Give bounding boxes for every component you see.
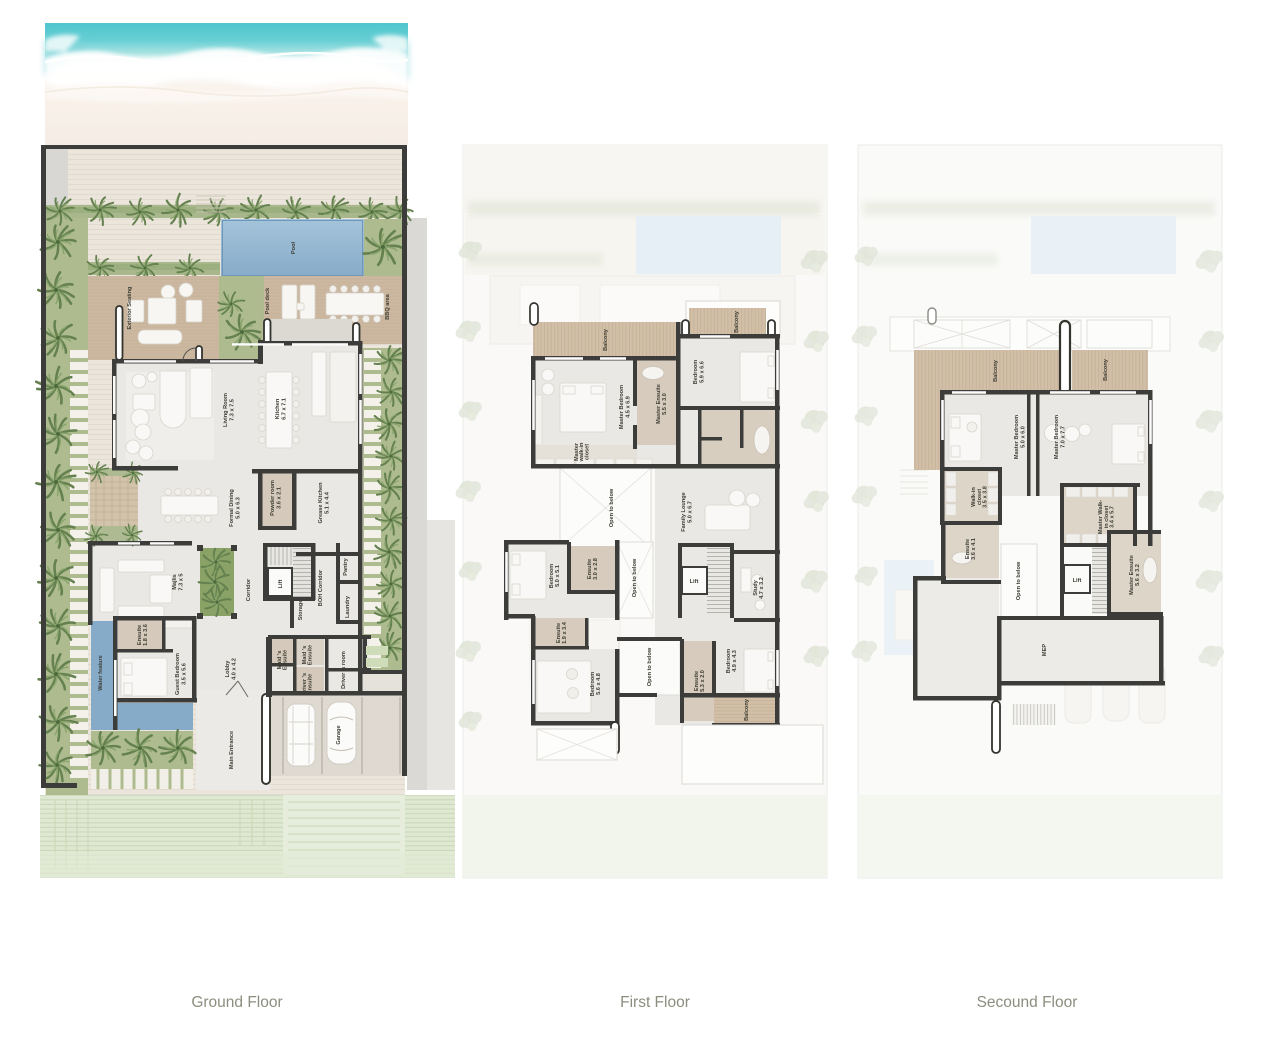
svg-text:Bedroom5.6 x 4.8: Bedroom5.6 x 4.8 <box>590 672 602 697</box>
svg-text:Secound Floor: Secound Floor <box>977 994 1078 1011</box>
svg-text:Lift: Lift <box>690 579 699 585</box>
svg-text:Ensuite1.9 x 3.4: Ensuite1.9 x 3.4 <box>556 621 568 644</box>
svg-text:Masterwalk-incloset: Masterwalk-incloset <box>574 442 590 463</box>
svg-text:Driver 'sEnsuite: Driver 'sEnsuite <box>302 673 314 695</box>
svg-text:First Floor: First Floor <box>620 994 690 1011</box>
svg-text:Ensuite1.8 x 3.6: Ensuite1.8 x 3.6 <box>137 624 149 646</box>
svg-text:Lift: Lift <box>1073 578 1082 584</box>
svg-text:Open to below: Open to below <box>647 647 653 686</box>
svg-text:Water feature: Water feature <box>98 655 104 691</box>
svg-text:Main Entrance: Main Entrance <box>229 731 235 769</box>
svg-text:Exterior Seating: Exterior Seating <box>127 286 133 329</box>
svg-text:Bedroom5.0 x 5.1: Bedroom5.0 x 5.1 <box>549 564 561 589</box>
svg-text:Balcony: Balcony <box>734 310 740 333</box>
svg-text:Walk-incloset3.5 x 3.8: Walk-incloset3.5 x 3.8 <box>971 486 989 508</box>
svg-text:Open to below: Open to below <box>632 558 638 597</box>
svg-text:Bedroom4.9 x 4.3: Bedroom4.9 x 4.3 <box>726 649 738 674</box>
svg-text:Pool: Pool <box>291 241 297 254</box>
svg-text:Ensuite5.3 x 2.0: Ensuite5.3 x 2.0 <box>694 670 706 692</box>
svg-text:BBQ area: BBQ area <box>385 293 391 319</box>
svg-text:Study4.7 x 3.2: Study4.7 x 3.2 <box>753 577 765 599</box>
svg-text:Storage: Storage <box>298 600 304 621</box>
svg-text:Pantry: Pantry <box>343 557 349 575</box>
svg-text:Lift: Lift <box>278 580 284 589</box>
svg-text:Lobby4.0 x 4.2: Lobby4.0 x 4.2 <box>225 658 238 680</box>
svg-text:Balcony: Balcony <box>744 698 750 721</box>
svg-text:Balcony: Balcony <box>603 328 609 351</box>
svg-text:MEP: MEP <box>1042 644 1048 656</box>
svg-text:Kitchen6.7 x 7.1: Kitchen6.7 x 7.1 <box>275 398 288 420</box>
svg-text:Balcony: Balcony <box>1103 358 1109 381</box>
svg-text:Open to below: Open to below <box>609 488 615 527</box>
svg-text:Laundry: Laundry <box>345 595 351 618</box>
svg-text:Open to below: Open to below <box>1016 561 1022 600</box>
svg-text:Balcony: Balcony <box>993 359 999 382</box>
svg-text:BOH Corridor: BOH Corridor <box>318 569 324 606</box>
svg-text:Corridor: Corridor <box>246 578 252 601</box>
svg-text:Maid 'sEnsuite: Maid 'sEnsuite <box>302 645 314 665</box>
svg-text:Ensuite3.6 x 4.1: Ensuite3.6 x 4.1 <box>965 538 977 560</box>
svg-text:Majlis7.3 x 5: Majlis7.3 x 5 <box>172 573 185 590</box>
svg-text:Garage: Garage <box>336 725 342 744</box>
svg-text:Maid 'sEnsuite: Maid 'sEnsuite <box>277 650 289 670</box>
svg-text:Bedroom5.9 x 6.6: Bedroom5.9 x 6.6 <box>693 360 706 385</box>
svg-text:Ground Floor: Ground Floor <box>191 994 282 1011</box>
svg-text:Driver 's room: Driver 's room <box>341 651 347 689</box>
svg-text:Pool deck: Pool deck <box>265 287 271 314</box>
svg-text:Ensuite3.0 x 2.8: Ensuite3.0 x 2.8 <box>587 558 599 580</box>
